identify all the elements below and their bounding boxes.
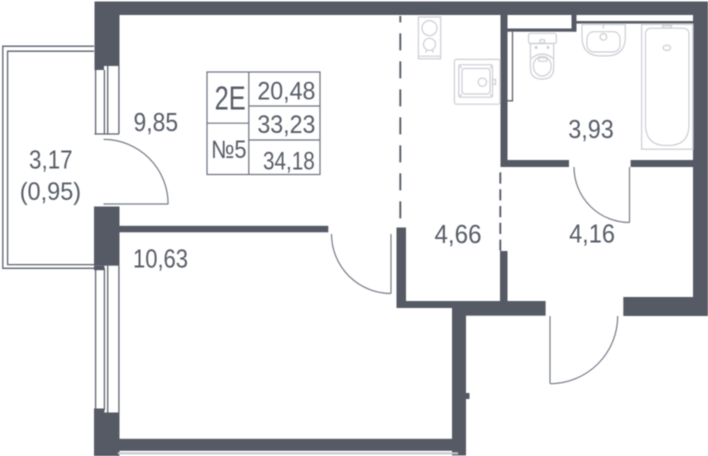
svg-text:2Е: 2Е <box>215 80 246 117</box>
svg-text:33,23: 33,23 <box>257 111 315 139</box>
svg-text:10,63: 10,63 <box>133 245 188 274</box>
svg-text:20,48: 20,48 <box>257 78 315 106</box>
svg-text:3,17: 3,17 <box>29 146 72 175</box>
svg-text:9,85: 9,85 <box>134 109 178 138</box>
svg-text:4,66: 4,66 <box>434 220 481 249</box>
svg-text:3,93: 3,93 <box>568 116 614 144</box>
svg-text:№5: №5 <box>211 136 247 164</box>
svg-text:4,16: 4,16 <box>569 220 615 248</box>
svg-text:(0,95): (0,95) <box>20 178 81 206</box>
svg-text:34,18: 34,18 <box>263 146 315 174</box>
